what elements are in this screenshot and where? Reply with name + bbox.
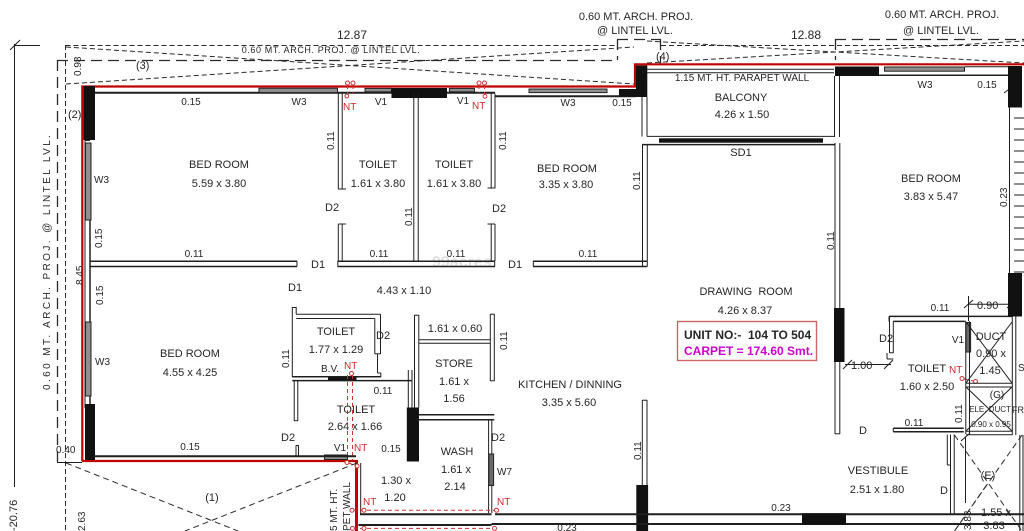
svg-text:BALCONY: BALCONY bbox=[715, 92, 768, 104]
svg-text:NT: NT bbox=[363, 497, 376, 508]
svg-text:@ LINTEL LVL.: @ LINTEL LVL. bbox=[903, 25, 979, 37]
svg-text:0.15: 0.15 bbox=[977, 80, 997, 91]
svg-text:W3: W3 bbox=[94, 175, 109, 186]
svg-text:D1: D1 bbox=[311, 259, 325, 271]
svg-text:@ LINTEL LVL.: @ LINTEL LVL. bbox=[597, 25, 673, 37]
svg-text:0.60 MT. ARCH. PROJ.: 0.60 MT. ARCH. PROJ. bbox=[885, 9, 999, 21]
svg-text:0.11: 0.11 bbox=[447, 249, 466, 260]
svg-text:D1: D1 bbox=[288, 282, 302, 294]
svg-text:0.40: 0.40 bbox=[56, 445, 76, 456]
svg-text:0.11: 0.11 bbox=[632, 171, 643, 190]
svg-text:D2: D2 bbox=[376, 330, 390, 342]
svg-text:0.90 x: 0.90 x bbox=[976, 348, 1006, 360]
svg-text:(E): (E) bbox=[981, 470, 996, 482]
svg-text:1.61 x: 1.61 x bbox=[441, 464, 471, 476]
svg-text:-20.76: -20.76 bbox=[8, 500, 20, 531]
svg-text:(G): (G) bbox=[990, 390, 1004, 401]
svg-text:D2: D2 bbox=[879, 333, 893, 345]
svg-text:0.60 MT. ARCH. PROJ. @ LINTEL: 0.60 MT. ARCH. PROJ. @ LINTEL LVL. bbox=[42, 133, 53, 390]
svg-text:1.61 x 0.60: 1.61 x 0.60 bbox=[428, 323, 482, 335]
svg-text:D: D bbox=[859, 425, 867, 437]
svg-text:0.23: 0.23 bbox=[557, 523, 577, 531]
svg-text:CARPET = 174.60 Smt.: CARPET = 174.60 Smt. bbox=[684, 344, 813, 358]
svg-text:D2: D2 bbox=[491, 432, 505, 444]
svg-text:0.11: 0.11 bbox=[185, 249, 204, 260]
svg-text:3.35 x 5.60: 3.35 x 5.60 bbox=[542, 397, 596, 409]
svg-text:1.61 x 3.80: 1.61 x 3.80 bbox=[351, 178, 405, 190]
svg-text:1.77 x 1.29: 1.77 x 1.29 bbox=[309, 344, 363, 356]
svg-text:BED ROOM: BED ROOM bbox=[160, 348, 220, 360]
svg-text:W3: W3 bbox=[95, 357, 110, 368]
svg-text:2.63: 2.63 bbox=[77, 511, 88, 531]
svg-text:1.60 x 2.50: 1.60 x 2.50 bbox=[900, 381, 954, 393]
svg-text:0.15: 0.15 bbox=[94, 228, 105, 248]
svg-text:TOILET: TOILET bbox=[908, 363, 947, 375]
svg-text:NT: NT bbox=[354, 443, 367, 454]
svg-text:4.26 x 1.50: 4.26 x 1.50 bbox=[715, 109, 769, 121]
svg-text:NT: NT bbox=[344, 361, 357, 372]
svg-text:STORE: STORE bbox=[435, 358, 473, 370]
svg-text:1.15 MT. HT. PARAPET WALL: 1.15 MT. HT. PARAPET WALL bbox=[675, 73, 810, 84]
svg-text:0.60 MT. ARCH. PROJ.: 0.60 MT. ARCH. PROJ. bbox=[579, 11, 693, 23]
svg-text:D: D bbox=[940, 485, 948, 497]
svg-text:0.15: 0.15 bbox=[95, 285, 106, 305]
svg-text:V1: V1 bbox=[457, 96, 470, 107]
svg-text:(1): (1) bbox=[205, 492, 218, 504]
svg-text:0.11: 0.11 bbox=[826, 231, 837, 250]
svg-text:2.14: 2.14 bbox=[444, 481, 465, 493]
svg-text:0.11: 0.11 bbox=[370, 249, 389, 260]
svg-text:1.61 x 3.80: 1.61 x 3.80 bbox=[427, 178, 481, 190]
svg-text:0.11: 0.11 bbox=[281, 349, 292, 368]
svg-text:W3: W3 bbox=[918, 80, 933, 91]
svg-text:0.11: 0.11 bbox=[633, 441, 644, 460]
svg-text:1.20: 1.20 bbox=[384, 492, 405, 504]
svg-text:0.15: 0.15 bbox=[181, 97, 201, 108]
svg-text:V1: V1 bbox=[375, 97, 388, 108]
svg-text:B.V.: B.V. bbox=[321, 364, 339, 375]
svg-text:1.30 x: 1.30 x bbox=[381, 475, 411, 487]
svg-text:0.90: 0.90 bbox=[977, 300, 998, 312]
svg-text:(4): (4) bbox=[656, 51, 669, 63]
svg-text:(3): (3) bbox=[136, 60, 149, 72]
svg-text:D2: D2 bbox=[492, 203, 506, 215]
svg-text:TOILET: TOILET bbox=[435, 159, 474, 171]
svg-text:0.11: 0.11 bbox=[374, 386, 393, 397]
svg-text:UNIT NO:- 104 TO 504: UNIT NO:- 104 TO 504 bbox=[684, 328, 811, 342]
svg-text:0.11: 0.11 bbox=[326, 131, 337, 150]
svg-text:0.15: 0.15 bbox=[180, 442, 200, 453]
svg-text:NT: NT bbox=[343, 102, 356, 113]
svg-text:0.11: 0.11 bbox=[931, 303, 950, 314]
svg-text:DRAWING ROOM: DRAWING ROOM bbox=[699, 286, 792, 298]
svg-text:0.11: 0.11 bbox=[579, 249, 598, 260]
svg-text:KITCHEN / DINNING: KITCHEN / DINNING bbox=[518, 379, 622, 391]
svg-text:1.61 x: 1.61 x bbox=[439, 376, 469, 388]
svg-text:1.55 x: 1.55 x bbox=[981, 507, 1011, 519]
svg-text:BED ROOM: BED ROOM bbox=[189, 159, 249, 171]
svg-text:3.83 x 5.47: 3.83 x 5.47 bbox=[904, 191, 958, 203]
svg-text:0.11: 0.11 bbox=[499, 331, 510, 350]
svg-text:2.64 x 1.66: 2.64 x 1.66 bbox=[328, 421, 382, 433]
svg-text:WASH: WASH bbox=[441, 446, 474, 458]
svg-text:1.56: 1.56 bbox=[443, 393, 464, 405]
svg-text:1.00: 1.00 bbox=[851, 360, 872, 372]
svg-text:TOILET: TOILET bbox=[337, 404, 376, 416]
svg-text:NT: NT bbox=[472, 101, 485, 112]
svg-text:(2): (2) bbox=[68, 109, 81, 121]
svg-text:4.43 x 1.10: 4.43 x 1.10 bbox=[377, 285, 431, 297]
svg-text:0.11: 0.11 bbox=[498, 131, 509, 150]
svg-text:TOILET: TOILET bbox=[317, 326, 356, 338]
svg-text:BED ROOM: BED ROOM bbox=[537, 163, 597, 175]
svg-text:0.98: 0.98 bbox=[73, 56, 84, 76]
svg-text:ELE. DUCT: ELE. DUCT bbox=[969, 405, 1011, 414]
svg-text:1.45: 1.45 bbox=[979, 365, 1000, 377]
svg-text:0.15: 0.15 bbox=[381, 444, 401, 455]
svg-text:2.51 x 1.80: 2.51 x 1.80 bbox=[850, 484, 904, 496]
svg-text:V1: V1 bbox=[334, 443, 347, 454]
svg-text:3.83: 3.83 bbox=[963, 510, 974, 530]
svg-text:4.26 x 8.37: 4.26 x 8.37 bbox=[718, 305, 772, 317]
svg-text:PET WALL: PET WALL bbox=[342, 482, 353, 531]
svg-text:BED ROOM: BED ROOM bbox=[901, 173, 961, 185]
svg-text:0.11: 0.11 bbox=[954, 404, 965, 423]
svg-text:TOILET: TOILET bbox=[359, 159, 398, 171]
svg-text:0.90 x 0.95: 0.90 x 0.95 bbox=[971, 420, 1011, 429]
svg-text:NT: NT bbox=[497, 497, 510, 508]
svg-text:NT: NT bbox=[949, 365, 962, 376]
svg-text:D2: D2 bbox=[281, 432, 295, 444]
svg-text:0.11: 0.11 bbox=[905, 418, 924, 429]
svg-text:8.45: 8.45 bbox=[75, 265, 86, 285]
svg-text:D2: D2 bbox=[325, 202, 339, 214]
svg-text:W3: W3 bbox=[561, 98, 576, 109]
svg-text:W3: W3 bbox=[292, 97, 307, 108]
svg-text:0.11: 0.11 bbox=[404, 207, 415, 226]
svg-text:DUCT: DUCT bbox=[976, 331, 1007, 343]
svg-text:5.59 x 3.80: 5.59 x 3.80 bbox=[192, 178, 246, 190]
svg-text:VESTIBULE: VESTIBULE bbox=[848, 465, 909, 477]
svg-text:W7: W7 bbox=[497, 467, 512, 478]
svg-text:0.23: 0.23 bbox=[999, 187, 1010, 207]
svg-text:SD1: SD1 bbox=[730, 147, 751, 159]
svg-text:V1: V1 bbox=[952, 335, 965, 346]
svg-text:0.60 MT. ARCH. PROJ. @ LINTEL: 0.60 MT. ARCH. PROJ. @ LINTEL LVL. bbox=[242, 45, 421, 55]
svg-text:D1: D1 bbox=[508, 259, 522, 271]
svg-text:0.15: 0.15 bbox=[612, 98, 632, 109]
svg-text:3.35 x 3.80: 3.35 x 3.80 bbox=[539, 179, 593, 191]
svg-text:12.88: 12.88 bbox=[791, 28, 821, 42]
svg-text:4.55 x 4.25: 4.55 x 4.25 bbox=[163, 367, 217, 379]
svg-text:S: S bbox=[1018, 363, 1024, 374]
svg-text:12.87: 12.87 bbox=[337, 28, 367, 42]
svg-text:3.83: 3.83 bbox=[983, 520, 1004, 531]
svg-text:0.23: 0.23 bbox=[771, 503, 791, 514]
svg-text:FR: FR bbox=[1012, 405, 1024, 415]
svg-text:5 MT. HT.: 5 MT. HT. bbox=[329, 489, 340, 531]
